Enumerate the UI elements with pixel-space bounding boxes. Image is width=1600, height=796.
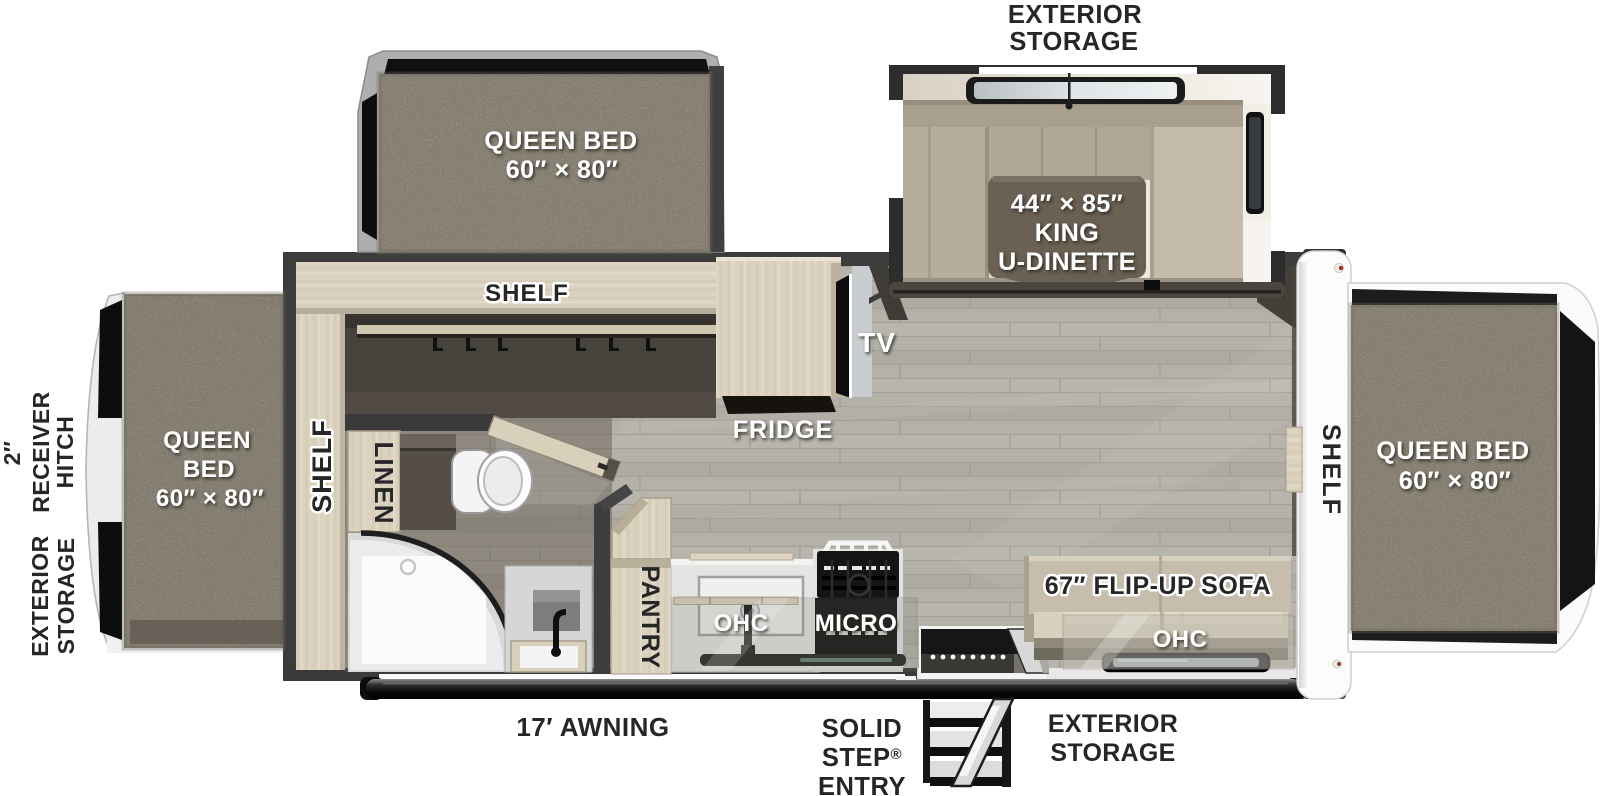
svg-text:EXTERIOR: EXTERIOR xyxy=(1048,710,1178,738)
svg-text:17′ AWNING: 17′ AWNING xyxy=(516,712,669,742)
svg-text:TV: TV xyxy=(858,327,896,358)
svg-text:QUEEN: QUEEN xyxy=(163,427,251,454)
svg-text:60″ × 80″: 60″ × 80″ xyxy=(156,485,264,512)
svg-text:RECEIVER: RECEIVER xyxy=(28,391,54,513)
svg-text:STORAGE: STORAGE xyxy=(1009,28,1138,56)
svg-text:FRIDGE: FRIDGE xyxy=(733,416,833,444)
svg-text:ENTRY: ENTRY xyxy=(818,773,906,796)
svg-text:44″ × 85″: 44″ × 85″ xyxy=(1011,190,1124,218)
svg-text:67″ FLIP-UP SOFA: 67″ FLIP-UP SOFA xyxy=(1045,572,1272,600)
svg-text:STEP®: STEP® xyxy=(822,744,902,772)
svg-text:U-DINETTE: U-DINETTE xyxy=(998,248,1136,276)
svg-text:MICRO: MICRO xyxy=(815,610,898,637)
svg-text:KING: KING xyxy=(1035,219,1100,247)
svg-text:EXTERIOR: EXTERIOR xyxy=(1008,1,1142,29)
svg-text:SHELF: SHELF xyxy=(485,280,569,307)
svg-text:BED: BED xyxy=(183,456,235,483)
svg-text:STORAGE: STORAGE xyxy=(1050,739,1175,767)
svg-text:SHELF: SHELF xyxy=(307,419,337,513)
svg-text:2″: 2″ xyxy=(0,441,25,466)
svg-text:PANTRY: PANTRY xyxy=(636,566,664,669)
svg-text:60″ × 80″: 60″ × 80″ xyxy=(506,156,619,184)
svg-text:SHELF: SHELF xyxy=(1317,424,1345,516)
svg-text:OHC: OHC xyxy=(714,610,769,637)
svg-text:STORAGE: STORAGE xyxy=(53,538,79,655)
svg-text:EXTERIOR: EXTERIOR xyxy=(27,535,53,657)
svg-text:LINEN: LINEN xyxy=(369,442,399,525)
svg-text:60″ × 80″: 60″ × 80″ xyxy=(1399,467,1512,495)
svg-text:SOLID: SOLID xyxy=(822,715,902,743)
svg-text:HITCH: HITCH xyxy=(52,416,78,489)
svg-text:QUEEN BED: QUEEN BED xyxy=(484,127,637,155)
svg-text:OHC: OHC xyxy=(1153,626,1208,653)
svg-text:QUEEN BED: QUEEN BED xyxy=(1376,437,1529,465)
